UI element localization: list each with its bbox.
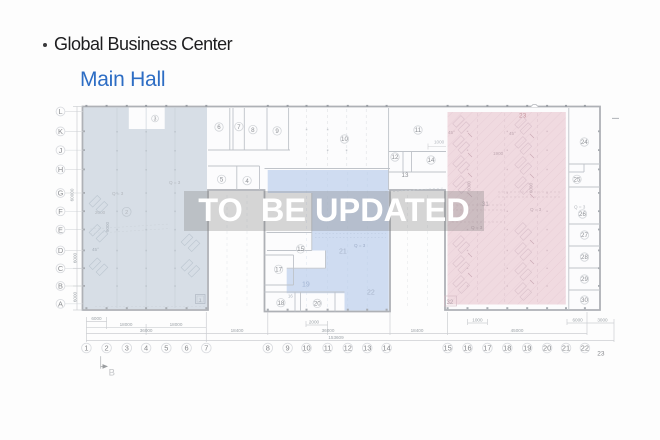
svg-text:2000: 2000: [309, 320, 320, 325]
svg-text:6: 6: [185, 344, 189, 353]
svg-text:23: 23: [519, 113, 527, 120]
svg-text:18000: 18000: [170, 322, 183, 327]
svg-text:6000: 6000: [572, 318, 583, 323]
svg-text:20: 20: [543, 344, 551, 353]
svg-text:8: 8: [251, 127, 255, 134]
svg-text:18: 18: [277, 300, 284, 307]
svg-text:45°: 45°: [448, 130, 455, 135]
svg-text:27: 27: [581, 232, 588, 239]
svg-text:9: 9: [275, 128, 279, 135]
svg-text:Q = 3: Q = 3: [169, 180, 181, 185]
svg-text:21: 21: [562, 344, 570, 353]
svg-text:6: 6: [217, 124, 221, 131]
svg-text:1: 1: [84, 344, 88, 353]
svg-text:45000: 45000: [511, 328, 524, 333]
svg-text:10: 10: [302, 344, 310, 353]
svg-text:K: K: [58, 127, 63, 136]
svg-text:2: 2: [105, 344, 109, 353]
svg-text:H: H: [58, 165, 63, 174]
svg-text:9000: 9000: [105, 221, 110, 232]
svg-text:C: C: [58, 264, 64, 273]
svg-text:26: 26: [579, 211, 586, 218]
svg-text:Q = 3: Q = 3: [574, 205, 586, 210]
svg-text:1000: 1000: [472, 318, 483, 323]
svg-text:1: 1: [199, 297, 202, 302]
svg-text:17: 17: [483, 344, 491, 353]
svg-text:11: 11: [415, 127, 422, 134]
svg-text:32: 32: [447, 300, 454, 306]
svg-text:9: 9: [286, 344, 290, 353]
svg-text:6000: 6000: [73, 252, 78, 263]
svg-text:1000: 1000: [434, 140, 445, 145]
svg-text:B: B: [109, 368, 115, 379]
svg-text:28: 28: [581, 254, 588, 261]
svg-text:20: 20: [314, 301, 321, 308]
svg-text:22: 22: [367, 290, 375, 297]
svg-text:G: G: [58, 189, 64, 198]
svg-text:18: 18: [503, 344, 511, 353]
svg-text:3000: 3000: [597, 318, 608, 323]
svg-text:18400: 18400: [411, 328, 424, 333]
svg-text:5: 5: [220, 177, 224, 184]
svg-text:14: 14: [428, 157, 435, 164]
svg-text:B: B: [58, 282, 63, 291]
svg-text:7: 7: [237, 124, 241, 131]
svg-text:36000: 36000: [322, 328, 335, 333]
svg-text:23: 23: [597, 351, 605, 358]
svg-text:18000: 18000: [120, 322, 133, 327]
svg-text:29: 29: [581, 276, 588, 283]
svg-text:36000: 36000: [140, 328, 153, 333]
svg-text:E: E: [58, 225, 63, 234]
svg-text:D: D: [58, 246, 63, 255]
svg-text:3: 3: [125, 344, 129, 353]
svg-text:7: 7: [204, 344, 208, 353]
svg-text:2: 2: [125, 210, 128, 216]
svg-text:15: 15: [443, 344, 451, 353]
svg-text:A: A: [58, 300, 63, 309]
svg-text:25: 25: [574, 177, 581, 184]
svg-text:1900: 1900: [493, 151, 504, 156]
svg-text:45°: 45°: [92, 247, 99, 252]
svg-text:19: 19: [302, 282, 310, 289]
svg-text:Q = 3: Q = 3: [354, 243, 366, 248]
svg-text:13: 13: [402, 172, 409, 179]
svg-text:14: 14: [382, 344, 390, 353]
svg-text:45°: 45°: [509, 131, 516, 136]
svg-text:8: 8: [266, 344, 270, 353]
svg-text:F: F: [58, 207, 63, 216]
svg-text:17: 17: [275, 267, 282, 274]
svg-text:10: 10: [341, 136, 348, 143]
svg-text:5: 5: [164, 344, 168, 353]
svg-text:L: L: [58, 107, 62, 116]
svg-text:153609: 153609: [328, 335, 344, 340]
svg-text:60000: 60000: [70, 188, 75, 201]
svg-text:Q = 3: Q = 3: [112, 191, 124, 196]
svg-text:21: 21: [339, 249, 347, 256]
svg-text:6000: 6000: [73, 291, 78, 302]
svg-text:15: 15: [297, 246, 304, 253]
svg-text:Q = 3: Q = 3: [530, 207, 542, 212]
svg-text:18400: 18400: [231, 328, 244, 333]
svg-text:12: 12: [392, 154, 399, 161]
svg-text:16: 16: [463, 344, 471, 353]
svg-text:22: 22: [581, 344, 589, 353]
svg-text:19: 19: [523, 344, 531, 353]
svg-text:6000: 6000: [91, 316, 102, 321]
svg-text:13: 13: [363, 344, 371, 353]
svg-text:6000: 6000: [467, 180, 472, 191]
svg-text:30: 30: [581, 297, 588, 304]
svg-text:11: 11: [324, 344, 332, 353]
svg-text:J: J: [59, 146, 63, 155]
svg-text:24: 24: [581, 139, 588, 146]
svg-text:16: 16: [288, 294, 293, 299]
svg-text:6000: 6000: [529, 182, 534, 193]
svg-text:4: 4: [144, 344, 148, 353]
svg-text:12: 12: [344, 344, 352, 353]
svg-text:4: 4: [245, 178, 249, 185]
svg-text:3: 3: [154, 117, 157, 123]
